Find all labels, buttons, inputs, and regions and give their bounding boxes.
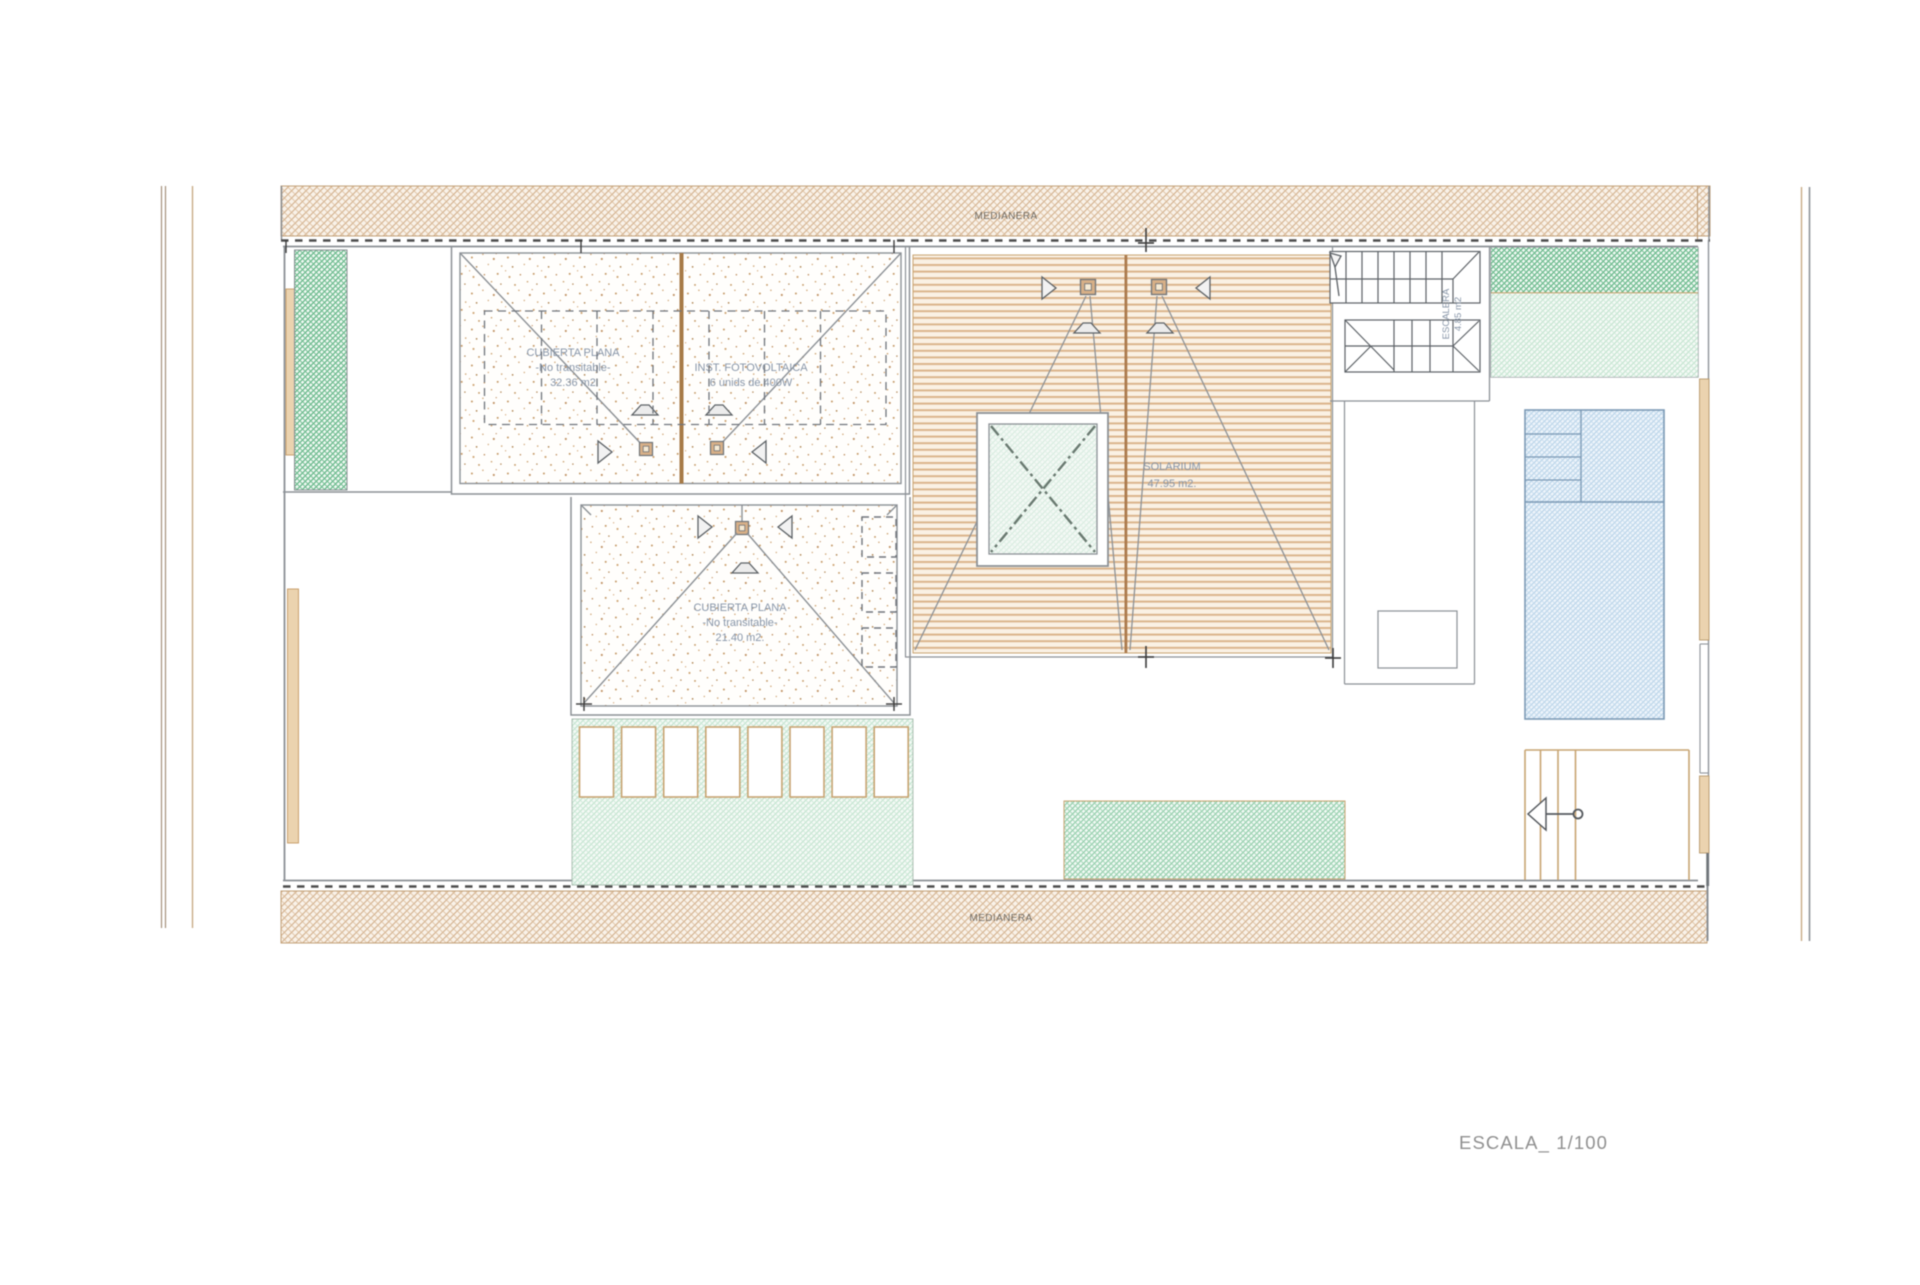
svg-text:INST. FOTOVOLTAICA: INST. FOTOVOLTAICA <box>694 362 808 374</box>
svg-text:21.40 m2.: 21.40 m2. <box>716 632 765 644</box>
svg-text:47.95 m2.: 47.95 m2. <box>1148 478 1197 490</box>
svg-text:CUBIERTA PLANA: CUBIERTA PLANA <box>693 602 787 614</box>
svg-text:MEDIANERA: MEDIANERA <box>974 211 1037 222</box>
svg-text:32.36 m2: 32.36 m2 <box>550 377 596 389</box>
svg-text:CUBIERTA PLANA: CUBIERTA PLANA <box>526 347 620 359</box>
svg-text:SOLARIUM: SOLARIUM <box>1143 461 1200 473</box>
svg-text:4.85 m2: 4.85 m2 <box>1453 297 1464 331</box>
svg-text:-No transitable-: -No transitable- <box>702 617 778 629</box>
svg-text:6 unids de 400W: 6 unids de 400W <box>710 377 793 389</box>
svg-text:ESCALERA: ESCALERA <box>1441 288 1452 339</box>
svg-text:-No transitable-: -No transitable- <box>535 362 611 374</box>
svg-text:ESCALA_ 1/100: ESCALA_ 1/100 <box>1459 1132 1608 1154</box>
svg-text:MEDIANERA: MEDIANERA <box>969 913 1032 924</box>
